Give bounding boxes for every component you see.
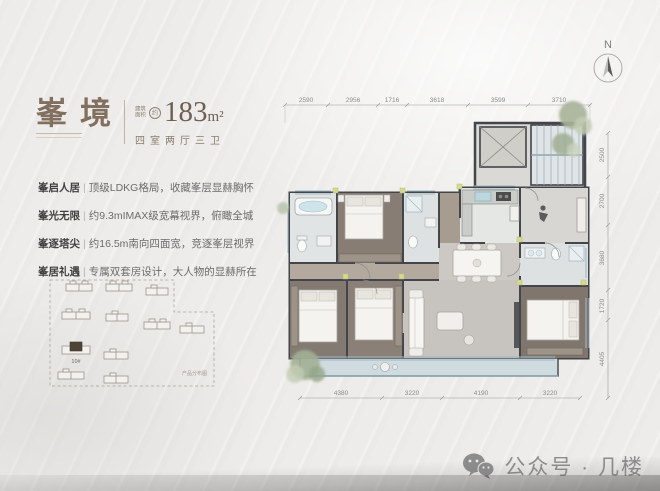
corridor-floor: [290, 263, 439, 280]
dims-right-labels: 2500 2700 3680 1720 4405: [599, 147, 606, 366]
wardrobe-icon: [395, 286, 402, 346]
basin-icon: [425, 218, 436, 227]
title-ornament: [36, 133, 82, 138]
siteplan-caption: 产品分布图: [182, 370, 207, 377]
unit-body: [288, 184, 589, 376]
toilet-icon: [297, 236, 307, 252]
compass-needle-icon: [608, 56, 613, 77]
svg-text:3680: 3680: [599, 250, 606, 265]
elevator-icon: [480, 127, 526, 167]
wardrobe-icon: [291, 286, 298, 346]
poster-canvas: 峯境 建筑 面积 约 183m² 四室两厅三卫 峯启人居|顶级LDKG格局，收藏…: [0, 0, 660, 491]
toilet-icon: [409, 236, 418, 248]
bed-icon: [527, 300, 579, 340]
coffee-table-icon: [437, 312, 463, 330]
bed-icon: [355, 288, 393, 340]
sofa-icon: [409, 290, 424, 356]
shower-icon: [406, 196, 422, 212]
title-divider: [124, 100, 125, 144]
svg-text:3220: 3220: [543, 390, 558, 397]
area-unit: m²: [208, 109, 224, 125]
svg-text:1720: 1720: [599, 298, 606, 313]
plan-title-wrap: 峯境: [36, 98, 124, 138]
svg-text:4190: 4190: [474, 390, 489, 397]
svg-text:3710: 3710: [552, 97, 567, 104]
dining-table-icon: [453, 244, 501, 282]
room-layout-text: 四室两厅三卫: [135, 132, 225, 147]
svg-text:2590: 2590: [299, 97, 314, 104]
svg-text:2500: 2500: [599, 147, 606, 162]
shrub-icon: [277, 202, 289, 214]
floorplan: N 2590 2956 1716 3618 3599 3710: [225, 18, 655, 418]
separator: |: [80, 238, 89, 250]
page-title: 峯境: [36, 98, 124, 129]
wechat-icon: [461, 452, 495, 480]
separator: |: [80, 210, 89, 222]
bed-icon: [299, 290, 337, 342]
svg-text:3599: 3599: [491, 97, 506, 104]
area-value: 183m²: [164, 98, 224, 127]
cabinet-icon: [577, 198, 586, 232]
siteplan-buildings: [58, 281, 204, 383]
compass-needle-icon: [603, 56, 608, 77]
siteplan-highlight-building: [62, 342, 90, 354]
dimension-lines-right: [606, 131, 610, 400]
compass: N: [594, 39, 622, 82]
tv-console-icon: [514, 302, 519, 348]
dims-top-labels: 2590 2956 1716 3618 3599 3710: [299, 97, 567, 104]
header-block: 峯境 建筑 面积 约 183m² 四室两厅三卫: [36, 98, 246, 147]
area-block: 建筑 面积 约 183m² 四室两厅三卫: [135, 98, 225, 147]
watermark-text: 公众号 · 几楼: [504, 451, 644, 481]
basin-icon: [317, 236, 331, 246]
svg-text:4405: 4405: [599, 351, 606, 366]
fridge-icon: [510, 206, 519, 221]
core-block: [475, 123, 585, 188]
dims-bottom-labels: 4380 3220 4190 3220: [334, 390, 558, 397]
svg-text:1716: 1716: [385, 97, 400, 104]
watermark: 公众号 · 几楼: [461, 451, 644, 481]
svg-text:2700: 2700: [599, 193, 606, 208]
siteplan-map: 10# 产品分布图: [40, 272, 225, 390]
compass-north-label: N: [604, 39, 612, 51]
side-table-icon: [464, 335, 474, 345]
sink-icon: [475, 192, 491, 201]
approx-badge: 约: [149, 107, 161, 119]
dimension-lines-top: [283, 103, 592, 123]
wardrobe-icon: [339, 254, 401, 262]
highlight-building-label: 10#: [71, 359, 81, 365]
svg-text:4380: 4380: [334, 390, 349, 397]
stove-icon: [496, 192, 511, 201]
wardrobe-icon: [527, 348, 583, 355]
bed-icon: [338, 195, 390, 239]
separator: |: [80, 182, 89, 194]
balcony: [300, 358, 558, 376]
svg-text:3220: 3220: [405, 390, 420, 397]
area-label: 建筑 面积: [135, 106, 146, 119]
bathtub-icon: [295, 198, 332, 215]
svg-text:2956: 2956: [346, 97, 361, 104]
svg-text:3618: 3618: [430, 97, 445, 104]
